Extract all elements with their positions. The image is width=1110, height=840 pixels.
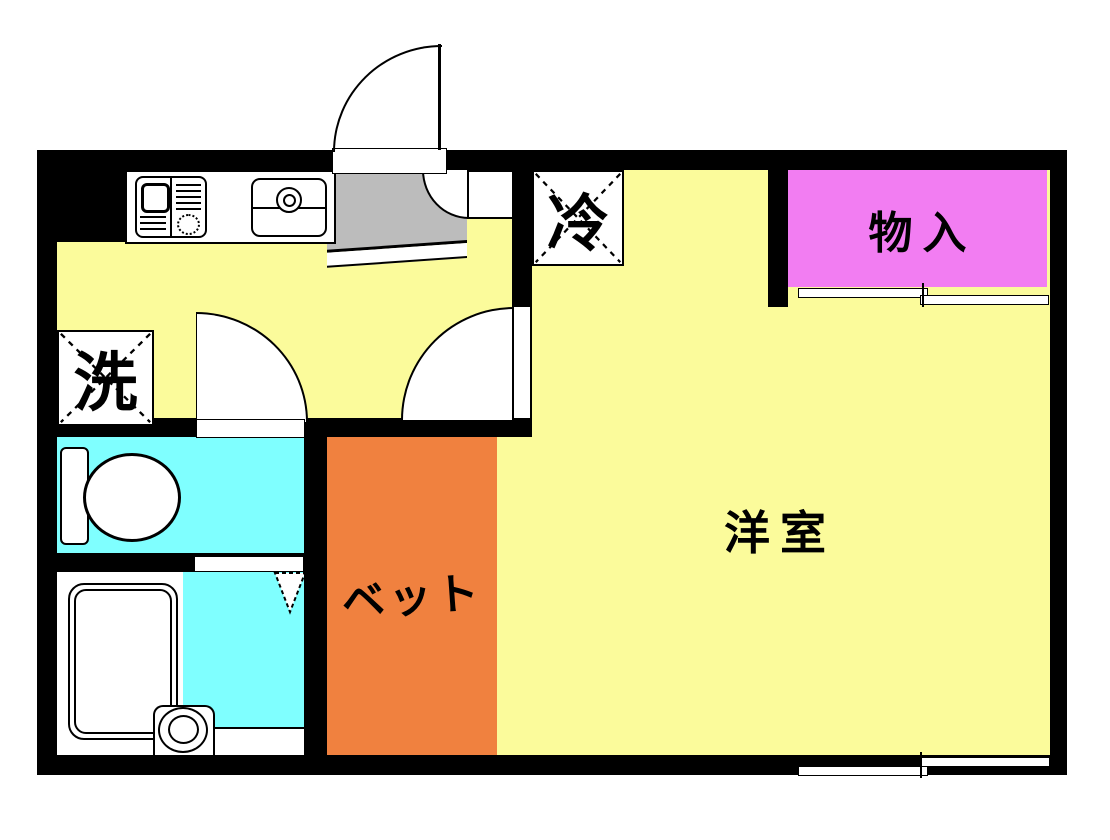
stove-burner-left-icon xyxy=(141,183,170,213)
stove-burner-right-icon xyxy=(177,214,200,235)
stove-icon xyxy=(135,176,207,238)
stove-grill-lines-left xyxy=(140,216,166,218)
faucet-center-icon xyxy=(283,194,296,207)
toilet-bowl-icon xyxy=(83,453,181,542)
storage-sliding-panel-left xyxy=(798,288,928,298)
bath-drain-inner-icon xyxy=(168,715,199,744)
wall-top xyxy=(37,150,1067,170)
window-center-tick xyxy=(920,752,922,778)
wall-kitchen-mainroom xyxy=(512,170,532,307)
western-room-label: 洋室 xyxy=(680,500,870,560)
window-panel-left xyxy=(798,766,928,776)
window-panel-right xyxy=(921,757,1050,767)
bed-space-label: ベット xyxy=(320,556,504,632)
shoe-cabinet xyxy=(467,170,514,219)
refrigerator-box: 冷 xyxy=(532,170,624,266)
entrance-door-swing-arc xyxy=(333,45,442,152)
bathroom-door-tick xyxy=(193,553,195,572)
stove-divider xyxy=(170,178,172,236)
bathroom-door-leaf xyxy=(193,556,304,572)
sink-icon xyxy=(251,178,327,237)
storage-label: 物入 xyxy=(788,170,1047,287)
refrigerator-label: 冷 xyxy=(534,172,622,264)
kitchen-counter xyxy=(125,170,336,244)
stove-grill-lines-right xyxy=(176,184,201,186)
floor-plan: 冷 洗 物入 洋室 ベット xyxy=(0,0,1110,840)
wall-left xyxy=(37,150,57,775)
storage-sliding-panel-right xyxy=(920,295,1049,305)
wall-right xyxy=(1050,150,1067,775)
wall-storage-stub xyxy=(768,150,788,307)
wall-topleft-block xyxy=(37,150,127,242)
toilet-door-leaf xyxy=(196,419,305,438)
washer-box: 洗 xyxy=(57,330,154,426)
mainroom-door-leaf xyxy=(512,305,532,420)
bath-door-marker-icon xyxy=(273,571,307,615)
washer-label: 洗 xyxy=(59,332,152,424)
